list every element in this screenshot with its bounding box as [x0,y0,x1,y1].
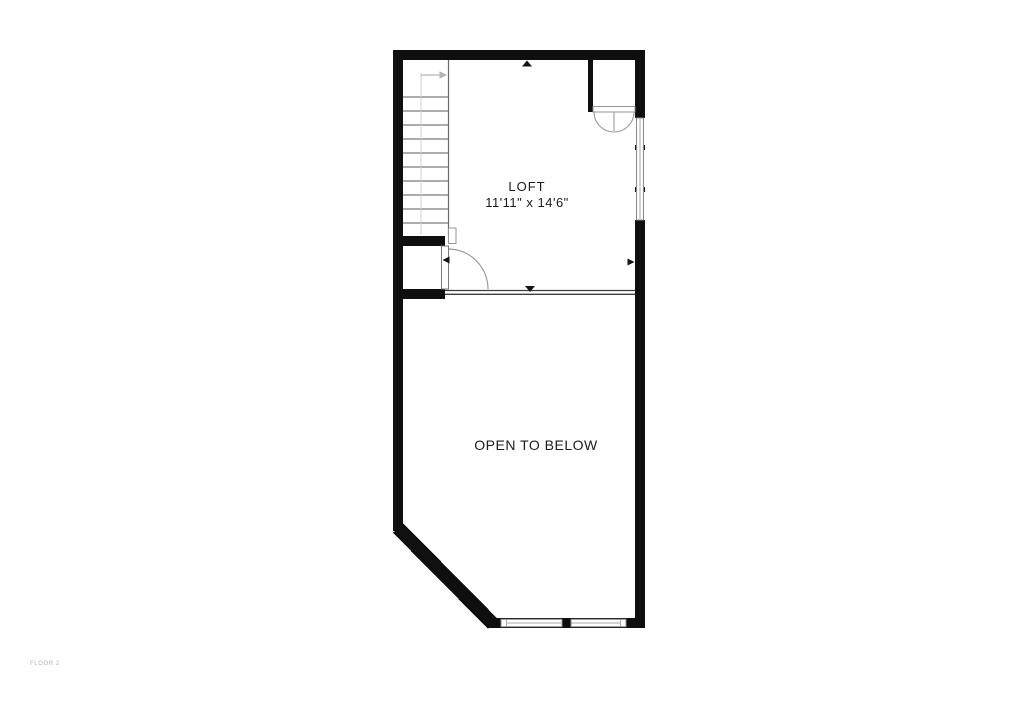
entry-door-leaf [442,246,449,289]
entry-door-swing-arc [449,249,489,289]
window-right-wall [637,118,644,220]
closet [593,107,635,133]
stairs [403,60,456,244]
open-to-below-label: OPEN TO BELOW [446,437,626,453]
floor-number-label: FLOOR 2 [30,661,60,667]
wall-alcove-bottom [393,289,445,299]
wall-closet-left [588,60,593,112]
stair-treads [403,97,449,223]
entry-door [442,246,489,289]
wall-right-lower [635,220,645,628]
window-mullion-bottom [563,618,571,628]
closet-door-arc-right [614,112,634,132]
stairs-direction-arrow-icon [421,71,447,79]
walls [393,50,645,629]
wall-top [393,50,645,60]
extent-marker-up-icon [522,61,532,67]
floor-plan-drawing [0,0,1024,724]
loft-room-dimensions: 11'11" x 14'6" [447,195,607,210]
extent-marker-right-icon [628,259,635,266]
closet-door-arc-left [594,112,614,132]
stair-door-jamb [449,228,457,244]
extent-markers [443,61,635,293]
wall-right-upper [635,50,645,118]
railing [445,291,635,295]
closet-double-doors [594,112,634,132]
loft-room-name: LOFT [457,179,597,194]
wall-stair-bottom [393,236,445,246]
closet-door-track [593,107,635,113]
window-bottom-right [571,619,626,626]
floor-plan: LOFT 11'11" x 14'6" OPEN TO BELOW FLOOR … [0,0,1024,724]
wall-diagonal [393,523,498,629]
window-bottom-left [501,619,562,626]
